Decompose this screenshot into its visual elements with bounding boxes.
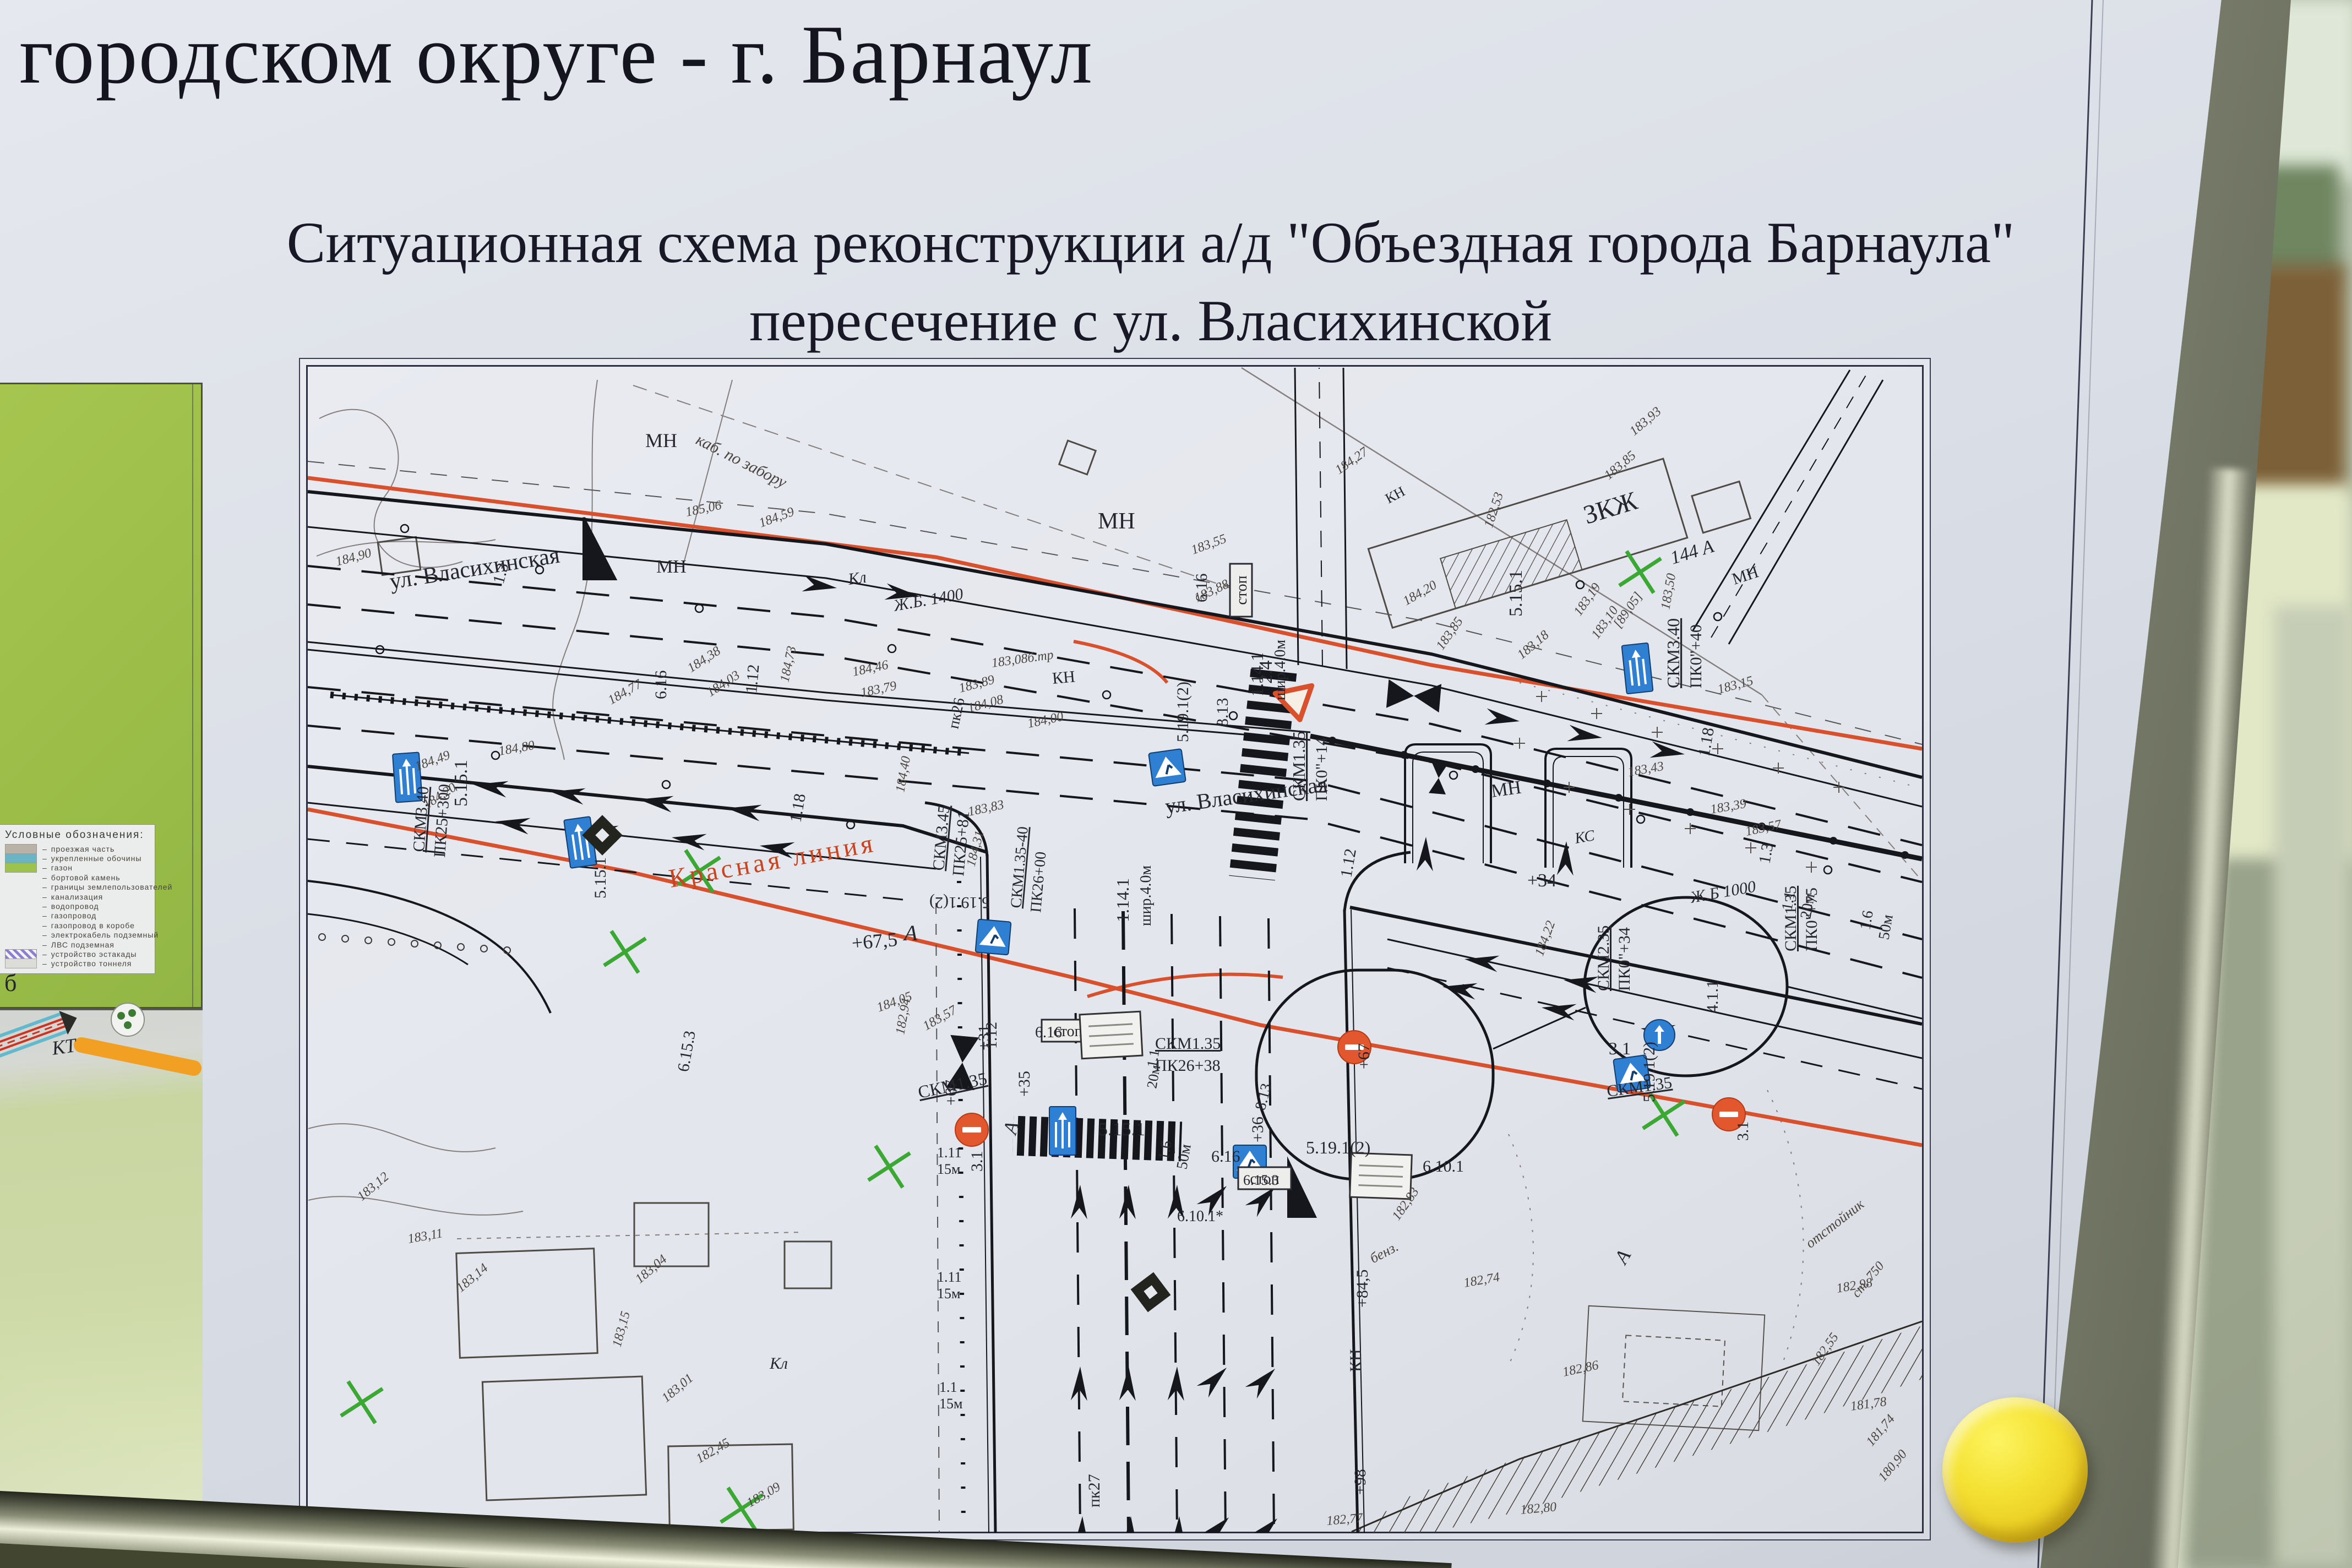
subtitle-line1: Ситуационная схема реконструкции а/д "Об… xyxy=(165,204,2136,282)
legend-item: –водопровод xyxy=(5,901,149,911)
legend-item-label: бортовой камень xyxy=(51,873,121,882)
legend-dash: – xyxy=(42,883,47,891)
frame-post xyxy=(2274,606,2352,1568)
legend-item-label: проезжая часть xyxy=(51,845,115,853)
panel-border xyxy=(192,384,193,1007)
legend-dash: – xyxy=(42,854,47,863)
left-map-fragment xyxy=(0,1009,203,1511)
legend-item: –проезжая часть xyxy=(5,844,149,853)
legend-dash: – xyxy=(42,930,47,939)
photo-of-information-board: городском округе - г. Барнаул Ситуационн… xyxy=(0,0,2352,1568)
legend-item-label: устройство эстакады xyxy=(51,950,137,959)
legend-item-label: водопровод xyxy=(51,902,99,911)
legend-item: –устройство тоннеля xyxy=(5,959,149,968)
main-map-frame xyxy=(299,358,1931,1540)
legend-dash: – xyxy=(42,902,47,911)
legend-rows: –проезжая часть–укрепленные обочины–газо… xyxy=(5,844,149,968)
legend-item-label: укрепленные обочины xyxy=(51,854,142,863)
legend-item-label: устройство тоннеля xyxy=(51,959,132,968)
scheme-subtitle: Ситуационная схема реконструкции а/д "Об… xyxy=(165,204,2136,360)
legend-swatch-icon xyxy=(5,959,37,968)
legend-dash: – xyxy=(42,950,47,959)
subtitle-line2: пересечение с ул. Власихинской xyxy=(165,282,2136,360)
legend-item-label: границы землепользователей xyxy=(51,883,173,891)
legend-dash: – xyxy=(42,845,47,853)
legend-item: –канализация xyxy=(5,892,149,901)
legend-dash: – xyxy=(42,892,47,901)
legend-item: –границы землепользователей xyxy=(5,883,149,892)
legend-item: –газопровод xyxy=(5,911,149,921)
legend-item: –бортовой камень xyxy=(5,873,149,882)
legend-item-label: газопровод в коробе xyxy=(51,921,135,930)
legend-item: –укрепленные обочины xyxy=(5,853,149,863)
legend-dash: – xyxy=(42,873,47,882)
legend-dash: – xyxy=(42,863,47,872)
legend-dash: – xyxy=(42,911,47,920)
legend-item-label: канализация xyxy=(51,892,103,901)
legend-item: –газон xyxy=(5,863,149,873)
legend-item-label: газопровод xyxy=(51,911,97,920)
legend-swatch-icon xyxy=(5,853,37,863)
legend-item-label: ЛВС подземная xyxy=(51,940,115,949)
legend-item-label: электрокабель подземный xyxy=(51,930,159,939)
legend-swatch-icon xyxy=(5,949,37,959)
legend-item: –ЛВС подземная xyxy=(5,940,149,949)
legend-swatch-icon xyxy=(5,863,37,873)
board-title: городском округе - г. Барнаул xyxy=(19,7,1341,102)
legend-item: –устройство эстакады xyxy=(5,949,149,959)
legend-dash: – xyxy=(42,921,47,930)
legend-swatch-icon xyxy=(5,844,37,854)
legend-dash: – xyxy=(42,959,47,968)
yellow-magnet xyxy=(1942,1397,2088,1543)
legend-item: –электрокабель подземный xyxy=(5,930,149,940)
legend-item: –газопровод в коробе xyxy=(5,921,149,930)
legend-item-label: газон xyxy=(51,863,73,872)
legend-title: Условные обозначения: xyxy=(5,829,149,841)
poster-sheet: городском округе - г. Барнаул Ситуационн… xyxy=(0,0,2352,1568)
legend-dash: – xyxy=(42,940,47,949)
legend-box: Условные обозначения: –проезжая часть–ук… xyxy=(0,824,155,974)
map-inner-border xyxy=(306,365,1924,1533)
